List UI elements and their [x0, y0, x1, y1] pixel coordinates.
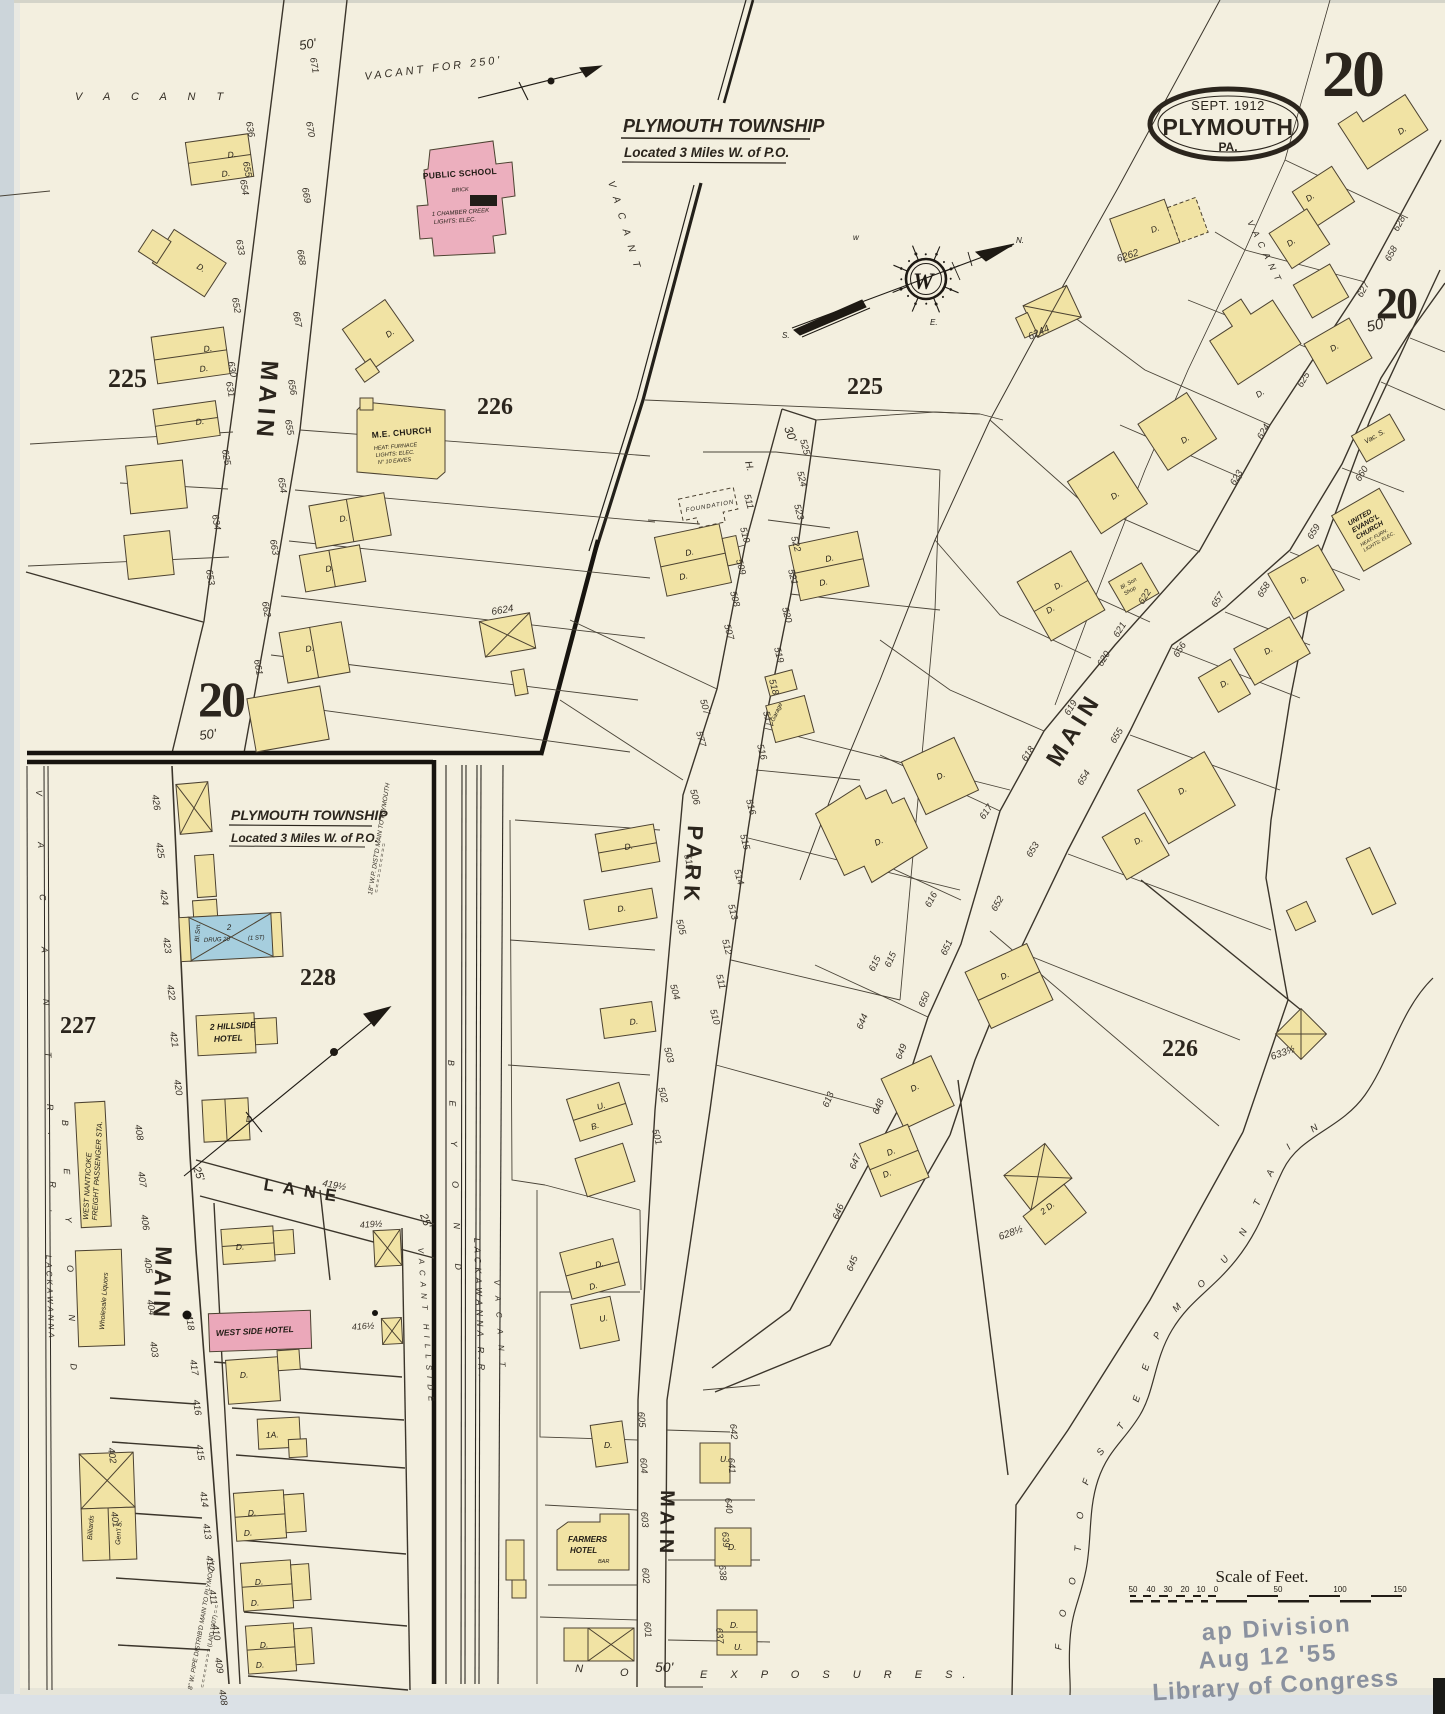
- svg-text:640: 640: [722, 1497, 734, 1514]
- svg-text:637: 637: [713, 1627, 725, 1644]
- svg-text:641: 641: [725, 1457, 737, 1474]
- svg-text:225: 225: [108, 364, 147, 393]
- svg-text:Scale of Feet.: Scale of Feet.: [1216, 1567, 1309, 1586]
- svg-text:423: 423: [160, 937, 173, 955]
- svg-text:417: 417: [187, 1359, 200, 1377]
- svg-text:403: 403: [147, 1341, 160, 1359]
- svg-text:D.: D.: [235, 1241, 244, 1252]
- svg-text:D.: D.: [227, 149, 237, 160]
- svg-text:D.: D.: [259, 1639, 268, 1650]
- svg-text:D.: D.: [247, 1507, 256, 1518]
- svg-text:D.: D.: [730, 1620, 739, 1630]
- svg-text:MAIN: MAIN: [250, 360, 283, 443]
- svg-text:BAR: BAR: [598, 1559, 609, 1565]
- svg-text:FARMERS: FARMERS: [568, 1535, 608, 1544]
- svg-text:409: 409: [212, 1657, 225, 1675]
- svg-text:D.: D.: [339, 513, 349, 524]
- svg-text:419½: 419½: [359, 1218, 383, 1230]
- svg-text:D.: D.: [305, 643, 315, 654]
- svg-text:D.: D.: [199, 363, 209, 374]
- svg-text:E X P O S U R E S.: E X P O S U R E S.: [700, 1669, 976, 1681]
- svg-text:642: 642: [727, 1423, 739, 1440]
- svg-text:D.: D.: [255, 1659, 264, 1670]
- svg-text:1A.: 1A.: [266, 1429, 279, 1440]
- svg-text:150: 150: [1393, 1585, 1407, 1594]
- svg-text:405: 405: [141, 1257, 154, 1275]
- svg-text:W: W: [913, 269, 935, 294]
- svg-text:BRICK: BRICK: [452, 187, 470, 194]
- svg-text:420: 420: [171, 1079, 184, 1097]
- svg-text:HOTEL: HOTEL: [570, 1546, 597, 1555]
- svg-text:100: 100: [1333, 1585, 1347, 1594]
- svg-text:424: 424: [157, 889, 170, 906]
- svg-text:416: 416: [190, 1399, 203, 1417]
- svg-text:416½: 416½: [351, 1320, 375, 1332]
- svg-text:V A C A N T: V A C A N T: [75, 91, 232, 103]
- svg-text:Located 3 Miles W. of P.O.: Located 3 Miles W. of P.O.: [624, 145, 789, 160]
- svg-text:PLYMOUTH TOWNSHIP: PLYMOUTH TOWNSHIP: [623, 116, 825, 136]
- svg-text:602: 602: [639, 1567, 651, 1584]
- svg-text:PA.: PA.: [1218, 140, 1237, 154]
- svg-text:50: 50: [1129, 1585, 1138, 1594]
- svg-text:(1 ST): (1 ST): [248, 935, 265, 942]
- svg-text:407: 407: [135, 1171, 148, 1189]
- svg-text:413: 413: [200, 1523, 213, 1541]
- svg-text:414: 414: [197, 1491, 210, 1508]
- svg-text:MAIN: MAIN: [655, 1490, 678, 1557]
- svg-text:10: 10: [1197, 1585, 1206, 1594]
- svg-text:D.: D.: [604, 1440, 613, 1450]
- svg-text:D.: D.: [195, 416, 205, 427]
- svg-text:U.: U.: [734, 1642, 743, 1652]
- svg-text:422: 422: [164, 984, 177, 1002]
- svg-text:402: 402: [105, 1447, 118, 1465]
- svg-text:605: 605: [635, 1411, 647, 1428]
- svg-text:50': 50': [198, 726, 217, 743]
- svg-text:50: 50: [1274, 1585, 1283, 1594]
- svg-text:404: 404: [144, 1299, 157, 1316]
- svg-text:HOTEL: HOTEL: [214, 1033, 243, 1044]
- svg-text:D.: D.: [624, 841, 634, 852]
- svg-text:N.: N.: [1016, 236, 1024, 245]
- svg-text:408: 408: [216, 1689, 229, 1707]
- svg-text:227: 227: [60, 1013, 96, 1039]
- svg-text:410: 410: [209, 1624, 222, 1642]
- svg-text:50': 50': [655, 1659, 675, 1675]
- svg-text:N: N: [575, 1663, 594, 1676]
- svg-text:D.: D.: [629, 1016, 639, 1027]
- svg-text:E.: E.: [930, 318, 938, 327]
- svg-text:20: 20: [1181, 1585, 1190, 1594]
- svg-text:Bl.Sm.: Bl.Sm.: [194, 922, 202, 942]
- svg-text:426: 426: [149, 794, 162, 812]
- svg-text:D.: D.: [221, 168, 231, 179]
- svg-text:638: 638: [716, 1564, 728, 1581]
- svg-text:225: 225: [847, 374, 883, 400]
- svg-text:S.: S.: [782, 331, 790, 340]
- svg-text:408: 408: [132, 1124, 145, 1142]
- svg-text:401: 401: [108, 1511, 121, 1528]
- svg-text:Located 3 Miles W. of P.O.: Located 3 Miles W. of P.O.: [231, 831, 378, 845]
- svg-text:406: 406: [138, 1214, 151, 1232]
- svg-text:412: 412: [203, 1555, 216, 1573]
- svg-text:D.: D.: [254, 1576, 263, 1587]
- svg-text:D.: D.: [617, 903, 627, 914]
- svg-text:425: 425: [153, 842, 166, 860]
- svg-text:603: 603: [638, 1511, 650, 1528]
- svg-text:D.: D.: [240, 1370, 249, 1380]
- svg-text:226: 226: [1162, 1036, 1198, 1062]
- svg-text:O: O: [620, 1667, 639, 1679]
- svg-text:421: 421: [167, 1031, 180, 1048]
- svg-text:601: 601: [641, 1621, 653, 1638]
- svg-text:411: 411: [206, 1589, 219, 1606]
- svg-text:40: 40: [1147, 1585, 1156, 1594]
- svg-text:604: 604: [637, 1457, 649, 1474]
- svg-text:30: 30: [1164, 1585, 1173, 1594]
- svg-text:50': 50': [298, 35, 318, 53]
- svg-text:226: 226: [477, 394, 513, 420]
- svg-text:228: 228: [300, 965, 336, 991]
- svg-text:0: 0: [1214, 1585, 1219, 1594]
- svg-text:20: 20: [198, 671, 245, 727]
- svg-text:SEPT. 1912: SEPT. 1912: [1191, 98, 1265, 113]
- svg-text:D.: D.: [203, 343, 213, 354]
- svg-text:PLYMOUTH: PLYMOUTH: [1163, 114, 1294, 140]
- svg-text:20: 20: [1322, 38, 1383, 111]
- svg-text:D.: D.: [243, 1527, 252, 1538]
- svg-text:D.: D.: [250, 1597, 259, 1608]
- svg-text:415: 415: [193, 1444, 206, 1462]
- svg-text:D.: D.: [325, 563, 335, 574]
- svg-text:2: 2: [226, 923, 232, 932]
- svg-text:639: 639: [719, 1531, 731, 1548]
- svg-text:PLYMOUTH TOWNSHIP: PLYMOUTH TOWNSHIP: [231, 807, 388, 823]
